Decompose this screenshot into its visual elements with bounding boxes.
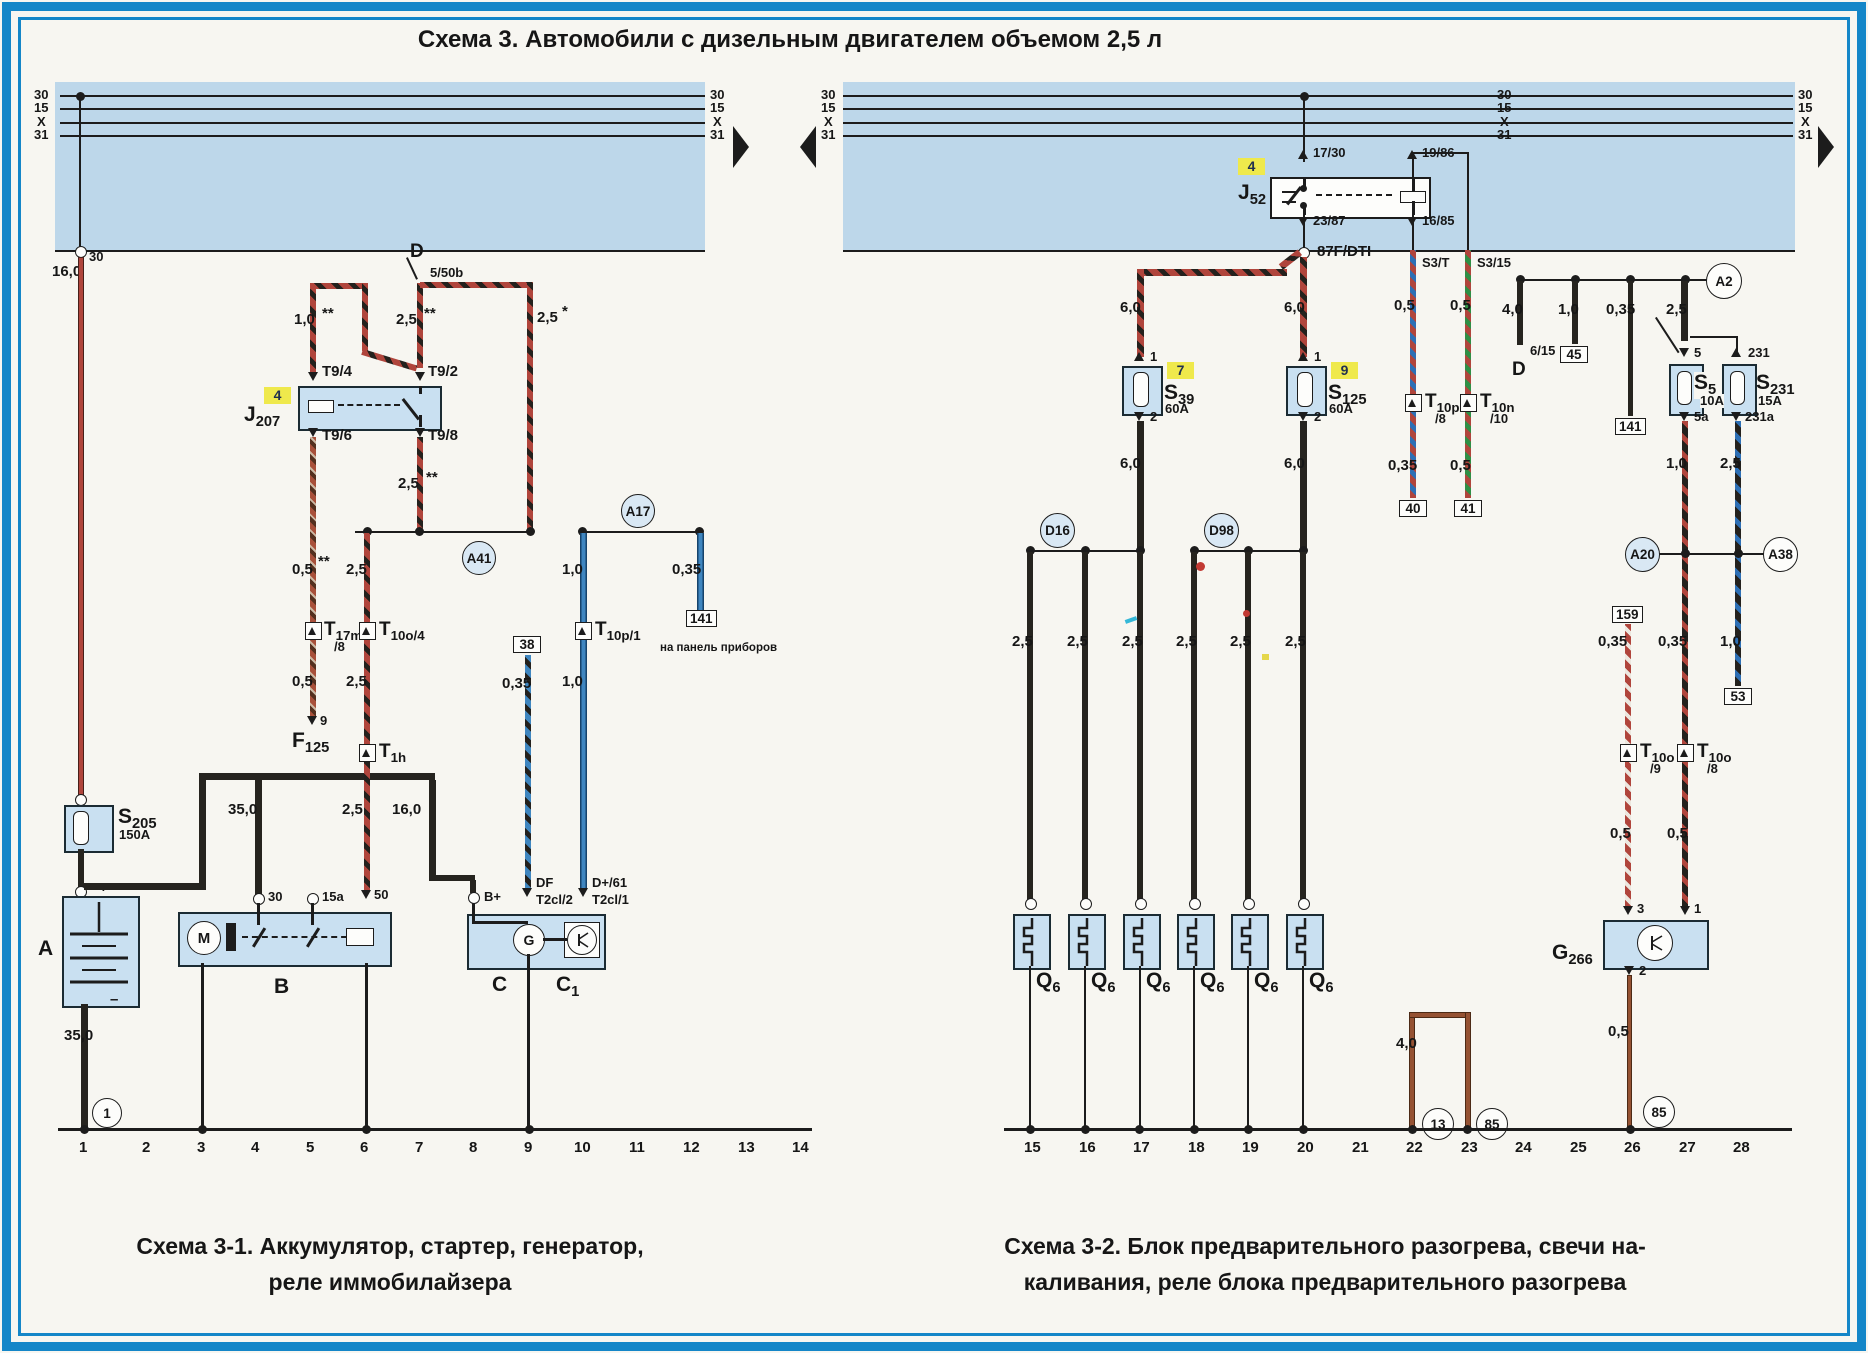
diagram-shape: S [1694,371,1708,394]
destination-box-141: 141 [1615,418,1646,435]
bus-line-x [60,122,705,124]
connector-pin: /8 [1435,412,1446,426]
terminal [1080,898,1092,910]
wire [419,386,422,394]
wire [1300,552,1306,900]
junction-dot [1681,549,1690,558]
connector-t10p1-label: T10p/1 [595,620,641,643]
diagram-shape: Q [1200,969,1216,992]
wire-gauge-label: 35,0 [228,802,257,818]
wire-gauge-label: 6,0 [1284,456,1305,472]
wire-gauge-label: 6,0 [1284,300,1305,316]
wire [1245,552,1251,900]
wire [364,640,370,745]
wire-16 [429,780,436,880]
wire-ground [365,963,368,1130]
bus-label-31: 31 [710,128,724,142]
arrow-icon [522,888,532,897]
arrow-icon [308,428,318,437]
wire-ground [1409,1012,1415,1130]
wire [1191,552,1197,900]
ground-number: 4 [251,1140,259,1156]
wire-gauge-label: 0,35 [1598,634,1627,650]
connection-d-label: D [410,242,424,262]
fuse-s5-rating: 10A [1700,394,1724,408]
caption-line: Схема 3-1. Аккумулятор, стартер, генерат… [60,1228,720,1264]
battery-symbol [62,896,136,1004]
glow-plug-q6 [1068,914,1106,970]
junction-dot [415,527,424,536]
connector-t10o-8 [1677,744,1694,762]
terminal-label: 231 [1748,346,1770,360]
arrow-icon [1679,348,1689,357]
ground-callout-1: 1 [92,1098,122,1128]
wire-gauge-label: 0,5 [1610,826,1631,842]
ground-number: 22 [1406,1140,1423,1156]
wire-16 [429,875,475,881]
pin-label: 2 [1314,410,1321,424]
generator-pin-label: T2cl/1 [592,893,629,907]
wire-gauge-label: 0,35 [502,676,531,692]
wire [1027,552,1033,900]
connector-t17m-pin: /8 [334,640,345,654]
pin-label: 1 [1150,350,1157,364]
diagram-shape: S [118,805,132,828]
wire-note: * [562,304,568,320]
wire-gauge-label: 2,5 [1122,634,1143,650]
diagram-shape [573,931,591,949]
diagram-shape: 125 [305,740,330,756]
diagram-shape: 10p/1 [607,628,641,643]
control-unit-label: G266 [1552,942,1593,969]
wire [1412,177,1415,191]
glow-plug-q6 [1123,914,1161,970]
pin-label: 1 [1314,350,1321,364]
fuse-element [73,811,89,845]
arrow-icon [1679,412,1689,421]
connector-t10o-9 [1620,744,1637,762]
bus-line-30 [843,95,1793,97]
battery-minus-label: – [110,992,118,1008]
regulator-symbol [567,925,597,955]
wire-gauge-label: 2,5 [1666,302,1687,318]
glow-plug-label: Q6 [1146,970,1171,997]
page-title: Схема 3. Автомобили с дизельным двигател… [200,26,1380,54]
fuse-s205 [64,805,114,853]
terminal-label: 30 [268,890,282,904]
wire-ground [201,963,204,1130]
diagram-shape: Q [1146,969,1162,992]
relay-pin-label: 17/30 [1313,146,1346,160]
scan-artifact [1196,562,1205,571]
circuit-ref-a2: A2 [1706,263,1742,299]
scan-artifact [1243,610,1250,617]
ground-number: 24 [1515,1140,1532,1156]
wire-gauge-label: 0,5 [1394,298,1415,314]
diagram-shape [1188,918,1196,966]
wire [1303,206,1306,215]
connector-t17m [305,622,322,640]
diagram-shape: Q [1036,969,1052,992]
destination-box-45: 45 [1560,346,1588,363]
pin-label: 1 [1694,902,1701,916]
relay-position-tag: 4 [1238,158,1265,175]
wire [1412,152,1414,177]
ground-number: 2 [142,1140,150,1156]
wire-gauge-label: 0,5 [1667,826,1688,842]
diagram-shape: 6 [1325,980,1333,996]
wire-ground [1247,966,1249,1130]
pin-label: 2 [1150,410,1157,424]
bus-label-31: 31 [821,128,835,142]
diagram-shape: Q [1309,969,1325,992]
fuse-element [1133,372,1149,407]
destination-box-53: 53 [1724,688,1752,705]
wire-gauge-label: 0,5 [292,562,313,578]
ground-number: 27 [1679,1140,1696,1156]
wire [362,283,368,351]
relay-j52-label: J52 [1238,182,1266,209]
wire-ground [1409,1012,1471,1018]
wire-gauge-label: 1,0 [562,562,583,578]
wire-35 [84,883,206,890]
wire-gauge-label: 2,5 [1067,634,1088,650]
ground-number: 28 [1733,1140,1750,1156]
diagram-shape: 85 [1651,1105,1666,1120]
connector-pin: /8 [1707,762,1718,776]
connector-t10p-1 [575,622,592,640]
wire-source-label: S3/T [1422,256,1449,270]
connector-t10n-10 [1460,394,1477,412]
relay-position-tag: 4 [264,387,291,404]
ground-point [1190,1125,1199,1134]
diagram-shape: 1 [103,1106,111,1121]
wire [1465,250,1471,394]
wire [1300,421,1307,552]
wire [1412,215,1414,250]
relay-dash [1316,194,1392,196]
ground-callout-13: 13 [1422,1108,1454,1140]
wire [420,282,530,288]
bus-line-x [843,122,1793,124]
junction-line-a41 [355,531,533,533]
generator-label: C [492,974,507,996]
terminal-label: 5 [1694,346,1701,360]
ground-number: 26 [1624,1140,1641,1156]
wire-ground [1627,975,1632,1130]
ground-point [1463,1125,1472,1134]
diagram-shape: G [524,932,535,948]
arrow-icon [415,372,425,381]
glow-plug-label: Q6 [1254,970,1279,997]
diagram-shape: 6 [1052,980,1060,996]
diagram-shape: F [292,729,305,752]
solenoid-coil-symbol [346,928,374,946]
diagram-shape [1015,916,1049,968]
wire-gauge-label: 1,0 [562,674,583,690]
wire [472,903,475,923]
wire-gauge-label: 2,5 [398,476,419,492]
wire-gauge-label: 2,5 [537,310,558,326]
glow-plug-q6 [1231,914,1269,970]
contact-step [1282,201,1296,203]
diagram-shape: C [556,973,571,996]
circuit-ref-a41: A41 [462,541,496,575]
bus-label-31: 31 [1497,128,1511,142]
ground-number: 11 [629,1140,645,1156]
wire-ground [527,966,530,1130]
terminal [1189,898,1201,910]
wire-gauge-label: 6,0 [1120,300,1141,316]
terminal-label: 5a [1694,410,1708,424]
connector-t1h-label: T1h [379,742,406,765]
bus-label-15: 15 [1497,101,1511,115]
diagram-shape: A17 [626,504,651,519]
ground-number: 3 [197,1140,205,1156]
ground-callout-85: 85 [1476,1108,1508,1140]
panel-note: на панель приборов [660,642,777,654]
ground-number: 6 [360,1140,368,1156]
wire-ground [1084,966,1086,1130]
diagram-shape [1070,916,1104,968]
wire-gauge-label: 2,5 [1285,634,1306,650]
glow-plug-q6 [1177,914,1215,970]
wire-note: ** [322,306,334,322]
wire [1303,215,1305,250]
component-f125-label: F125 [292,730,329,757]
generator-symbol: G [513,924,545,956]
diagram-shape: 1 [571,984,579,1000]
ground-point [1299,1125,1308,1134]
wire [1412,201,1415,215]
wire-gauge-label: 2,5 [1012,634,1033,650]
ground-rail [1004,1128,1792,1131]
wire-to-terminal-30 [255,780,262,895]
bus-line-31 [843,135,1793,137]
generator-pin-label: D+/61 [592,876,627,890]
bus-label-15: 15 [710,101,724,115]
node-label: 87F/DTI [1317,244,1371,260]
diagram-shape: 6 [1162,980,1170,996]
arrow-icon [308,372,318,381]
fuse-s125-rating: 60A [1329,402,1353,416]
diagram-shape: A2 [1715,274,1732,289]
wire [310,437,316,622]
fuse-s205-rating: 150A [119,828,150,842]
circuit-ref-a20: A20 [1625,537,1660,572]
destination-box-38: 38 [513,636,541,653]
diagram-shape: T [379,741,391,762]
wire [472,921,528,924]
arrow-icon [1624,966,1634,975]
fuse-s231-rating: 15A [1758,394,1782,408]
arrow-icon [1623,906,1633,915]
wire-battery-feed [78,257,84,797]
wire-gauge-label: 0,35 [1388,458,1417,474]
caption-line: реле иммобилайзера [60,1264,720,1300]
relay-pin-label: T9/8 [428,428,458,444]
wire [310,283,368,289]
arrow-icon [1134,352,1144,361]
diagram-shape [1652,944,1662,950]
battery-label: A [38,938,53,960]
arrow-icon [1134,412,1144,421]
terminal [1135,898,1147,910]
wire [527,954,530,966]
fuse-s39-rating: 60A [1165,402,1189,416]
ground-number: 8 [469,1140,477,1156]
wire-gauge-label: 2,5 [346,562,367,578]
caption-line: каливания, реле блока предварительного р… [850,1264,1800,1300]
ground-number: 19 [1242,1140,1259,1156]
wire-ground [81,1004,88,1130]
relay-dash [338,404,400,406]
wire [1410,250,1416,394]
fuse-element [1297,372,1313,407]
ground-number: 23 [1461,1140,1478,1156]
ground-callout-85: 85 [1643,1096,1675,1128]
circuit-ref-a17: A17 [621,494,655,528]
page-continuation-arrow-right [733,126,749,168]
ground-point [1626,1125,1635,1134]
wire-gauge-label: 2,5 [1176,634,1197,650]
wire [79,96,81,248]
wire-note: ** [424,306,436,322]
diagram-shape: 52 [1250,192,1266,208]
connector-pin: /9 [1650,762,1661,776]
caption-schema-3-2: Схема 3-2. Блок предварительного разогре… [850,1228,1800,1300]
connection-d-terminal: 5/50b [430,266,463,280]
diagram-shape [1125,916,1159,968]
glow-plug-label: Q6 [1091,970,1116,997]
resistor-symbol [226,923,236,951]
ground-number: 15 [1024,1140,1041,1156]
diagram-shape: 6 [1270,980,1278,996]
splice-d16: D16 [1040,513,1075,548]
wire-gauge-label: 16,0 [392,802,421,818]
circuit-ref-a38: A38 [1763,537,1798,572]
relay-pin-label: T9/4 [322,364,352,380]
pin-label: 2 [1639,964,1646,978]
relay-plug-symbol [308,400,334,413]
diagram-shape [579,941,588,947]
relay-pin-label: 23/87 [1313,214,1346,228]
bus-line-31 [60,135,705,137]
page-continuation-arrow-left [800,126,816,168]
ground-number: 17 [1133,1140,1150,1156]
junction-line-a17 [583,531,701,533]
page-continuation-arrow-right [1818,126,1834,168]
wire [419,415,422,427]
diagram-shape: D98 [1209,523,1234,538]
junction-line-a2 [1520,279,1707,281]
contact-step [1282,191,1296,193]
ground-number: 16 [1079,1140,1096,1156]
wire [1410,412,1416,498]
wire [1082,552,1088,900]
glow-plug-label: Q6 [1200,970,1225,997]
wire [311,903,314,925]
generator-pin-label: T2cl/2 [536,893,573,907]
relay-j207-label: J207 [244,404,280,431]
diagram-shape [1652,936,1662,942]
arrow-icon [361,890,371,899]
fuse-element [1677,371,1692,405]
diagram-shape [1645,933,1665,953]
diagram-shape [1233,916,1267,968]
diagram-shape: T [324,619,336,640]
wire-gauge-label: 2,5 [342,802,363,818]
wire [1412,152,1469,154]
wire-ground [1465,1012,1471,1130]
wire-gauge-label: 16,0 [52,264,81,280]
diagram-shape: G [1552,941,1568,964]
connector-t1h [359,744,376,762]
diagram-shape [1297,918,1305,966]
wire-ground [1302,966,1304,1130]
bus-label-31: 31 [34,128,48,142]
ground-number: 10 [574,1140,591,1156]
wire [1137,421,1144,552]
glow-plug-q6 [1286,914,1324,970]
diagram-shape: T [1697,741,1709,762]
diagram-shape: 10o/4 [391,628,425,643]
junction-dot [1734,549,1743,558]
wire [1690,336,1738,338]
ground-number: 25 [1570,1140,1587,1156]
diagram-shape: 207 [256,414,281,430]
wire-gauge-label: 0,5 [1450,458,1471,474]
junction-dot [526,527,535,536]
fuse-position-tag: 9 [1331,362,1358,379]
diagram-shape: T [1640,741,1652,762]
ground-point [362,1125,371,1134]
arrow-icon [415,428,425,437]
arrow-icon [1298,412,1308,421]
arrow-icon [1731,412,1741,421]
wire-gauge-label: 35,0 [64,1028,93,1044]
caption-schema-3-1: Схема 3-1. Аккумулятор, стартер, генерат… [60,1228,720,1300]
wire [1625,624,1631,908]
ground-number: 1 [79,1140,87,1156]
connector-t10o4-label: T10o/4 [379,620,425,643]
ground-number: 14 [792,1140,809,1156]
ground-number: 21 [1352,1140,1369,1156]
glow-plug-label: Q6 [1036,970,1061,997]
caption-line: Схема 3-2. Блок предварительного разогре… [850,1228,1800,1264]
splice-d98: D98 [1204,513,1239,548]
diagram-shape: 6 [1216,980,1224,996]
wire [364,533,370,623]
wire-gauge-label: 2,5 [1230,634,1251,650]
diagram-shape [1179,916,1213,968]
diagram-shape: A38 [1768,547,1793,562]
connector-pin: /10 [1490,412,1508,426]
fuse-position-tag: 7 [1167,362,1194,379]
diagram-shape [1024,918,1032,966]
bus-label-15: 15 [1798,101,1812,115]
bus-label-31: 31 [1798,128,1812,142]
ground-number: 20 [1297,1140,1314,1156]
arrow-icon [578,888,588,897]
terminal-50-label: 50 [374,888,388,902]
terminal-label: B+ [484,890,501,904]
terminal [1025,898,1037,910]
wire-gauge-label: 0,5 [292,674,313,690]
connector-t10p-8 [1405,394,1422,412]
wire-ground [1139,966,1141,1130]
connector-t10o-4 [359,622,376,640]
